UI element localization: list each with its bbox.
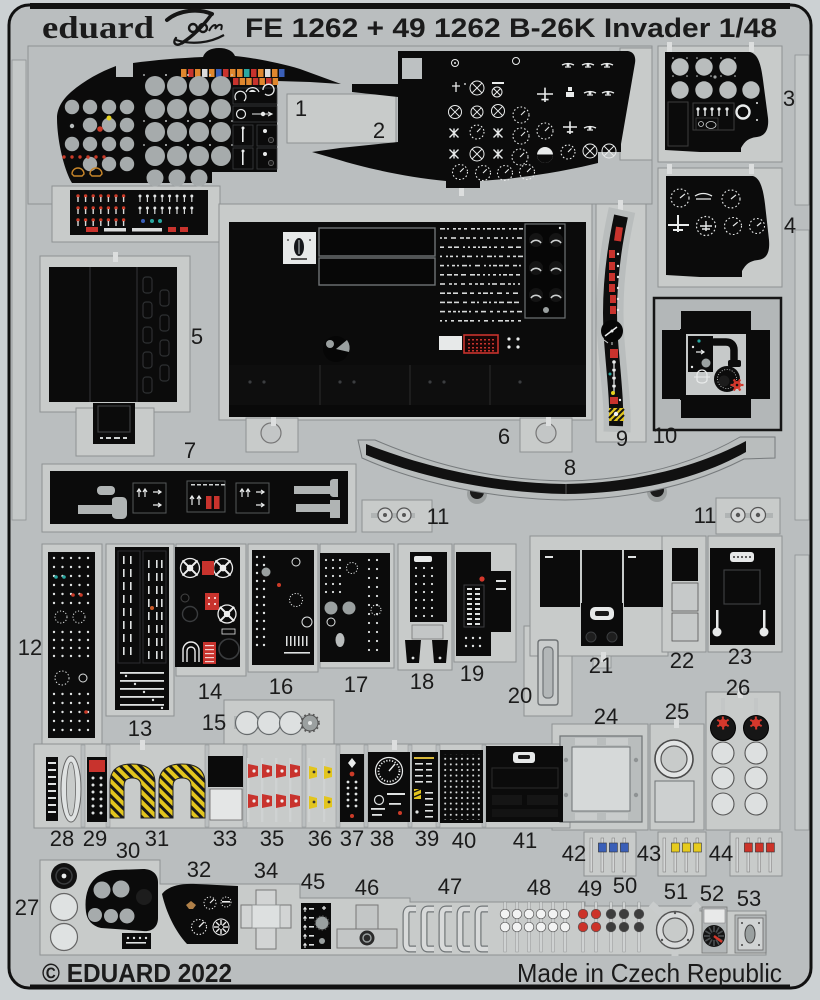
svg-text:4: 4 [784, 213, 796, 238]
svg-text:51: 51 [664, 879, 688, 904]
svg-text:47: 47 [438, 874, 462, 899]
svg-text:34: 34 [254, 858, 278, 883]
svg-text:38: 38 [370, 826, 394, 851]
svg-text:42: 42 [562, 841, 586, 866]
svg-text:9: 9 [616, 426, 628, 451]
svg-text:37: 37 [340, 826, 364, 851]
svg-text:15: 15 [202, 710, 226, 735]
svg-text:6: 6 [498, 424, 510, 449]
svg-text:41: 41 [513, 828, 537, 853]
svg-text:Made in Czech Republic: Made in Czech Republic [517, 958, 782, 988]
svg-text:43: 43 [637, 841, 661, 866]
svg-text:13: 13 [128, 716, 152, 741]
svg-text:21: 21 [589, 653, 613, 678]
svg-text:16: 16 [269, 674, 293, 699]
svg-text:20: 20 [508, 683, 532, 708]
svg-text:12: 12 [18, 635, 42, 660]
svg-text:26: 26 [726, 675, 750, 700]
svg-text:18: 18 [410, 669, 434, 694]
svg-text:2: 2 [373, 118, 385, 143]
svg-text:52: 52 [700, 881, 724, 906]
svg-text:46: 46 [355, 875, 379, 900]
svg-text:10: 10 [653, 423, 677, 448]
svg-text:39: 39 [415, 826, 439, 851]
svg-text:31: 31 [145, 826, 169, 851]
svg-text:36: 36 [308, 826, 332, 851]
svg-text:8: 8 [564, 455, 576, 480]
svg-text:11: 11 [427, 504, 450, 529]
svg-text:eduard: eduard [42, 9, 154, 45]
svg-text:48: 48 [527, 875, 551, 900]
svg-text:40: 40 [452, 828, 476, 853]
svg-text:© EDUARD 2022: © EDUARD 2022 [42, 958, 232, 988]
svg-text:1: 1 [295, 96, 307, 121]
svg-text:24: 24 [594, 704, 618, 729]
svg-text:53: 53 [737, 886, 761, 911]
svg-text:44: 44 [709, 841, 733, 866]
svg-text:FE 1262 + 49 1262 B-26K Invad: FE 1262 + 49 1262 B-26K Invader 1/48 [245, 13, 777, 43]
svg-text:30: 30 [116, 838, 140, 863]
svg-text:33: 33 [213, 826, 237, 851]
svg-text:22: 22 [670, 648, 694, 673]
svg-text:32: 32 [187, 857, 211, 882]
svg-text:28: 28 [50, 826, 74, 851]
svg-text:3: 3 [783, 86, 795, 111]
svg-text:19: 19 [460, 661, 484, 686]
svg-text:7: 7 [184, 438, 196, 463]
svg-text:49: 49 [578, 876, 602, 901]
svg-text:27: 27 [15, 895, 39, 920]
svg-text:14: 14 [198, 679, 222, 704]
svg-text:11: 11 [694, 503, 717, 528]
svg-text:17: 17 [344, 672, 368, 697]
svg-text:23: 23 [728, 644, 752, 669]
svg-text:25: 25 [665, 699, 689, 724]
svg-text:5: 5 [191, 324, 203, 349]
svg-text:35: 35 [260, 826, 284, 851]
svg-text:50: 50 [613, 873, 637, 898]
svg-text:29: 29 [83, 826, 107, 851]
svg-text:45: 45 [301, 869, 325, 894]
